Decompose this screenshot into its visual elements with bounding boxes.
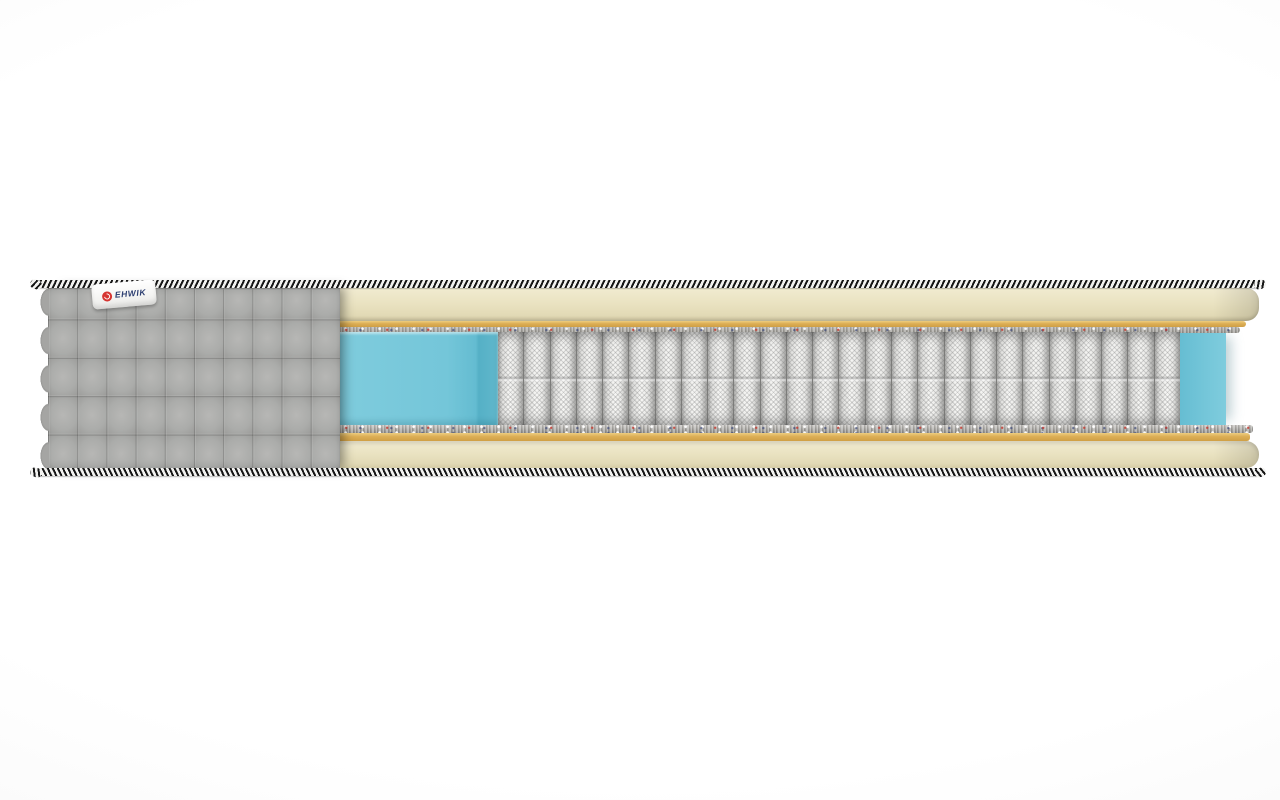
pocket-coil xyxy=(945,332,970,425)
border-tape-bottom xyxy=(35,468,1261,476)
mattress-cutaway: EHWIK xyxy=(35,280,1262,476)
pocket-coil xyxy=(787,332,812,425)
fiber-pad-bottom-layer xyxy=(338,433,1250,441)
cover-scalloped-edge xyxy=(36,283,49,473)
pocket-coil xyxy=(498,332,523,425)
pocket-coil xyxy=(656,332,681,425)
pocket-coil xyxy=(971,332,996,425)
brand-tag-text: EHWIK xyxy=(114,288,146,299)
pocket-coil xyxy=(1102,332,1127,425)
comfort-foam-bottom-layer xyxy=(338,441,1259,468)
quilted-cover xyxy=(48,282,340,474)
pocket-coil xyxy=(708,332,733,425)
pocket-coil xyxy=(918,332,943,425)
pocket-coil xyxy=(1050,332,1075,425)
pocket-coil xyxy=(577,332,602,425)
pocket-coil xyxy=(603,332,628,425)
felt-pad-bottom-layer xyxy=(338,425,1253,433)
pocket-coil xyxy=(839,332,864,425)
pocket-coil xyxy=(682,332,707,425)
pocket-coil xyxy=(1023,332,1048,425)
border-tape-top xyxy=(35,280,1261,288)
pocket-coil xyxy=(734,332,759,425)
pocket-coil xyxy=(551,332,576,425)
pocket-coil xyxy=(892,332,917,425)
pocket-coil xyxy=(813,332,838,425)
spring-block xyxy=(498,332,1180,425)
brand-logo-icon xyxy=(101,291,112,302)
pocket-coil xyxy=(524,332,549,425)
pocket-coil xyxy=(1155,332,1180,425)
pocket-coil xyxy=(997,332,1022,425)
pocket-coil xyxy=(629,332,654,425)
pocket-coil xyxy=(1076,332,1101,425)
pocket-coil xyxy=(866,332,891,425)
comfort-foam-top-layer xyxy=(338,288,1259,321)
pocket-coil xyxy=(1128,332,1153,425)
perimeter-foam-edge xyxy=(338,332,498,425)
pocket-coil xyxy=(761,332,786,425)
perimeter-foam-back-wall xyxy=(1180,332,1226,425)
